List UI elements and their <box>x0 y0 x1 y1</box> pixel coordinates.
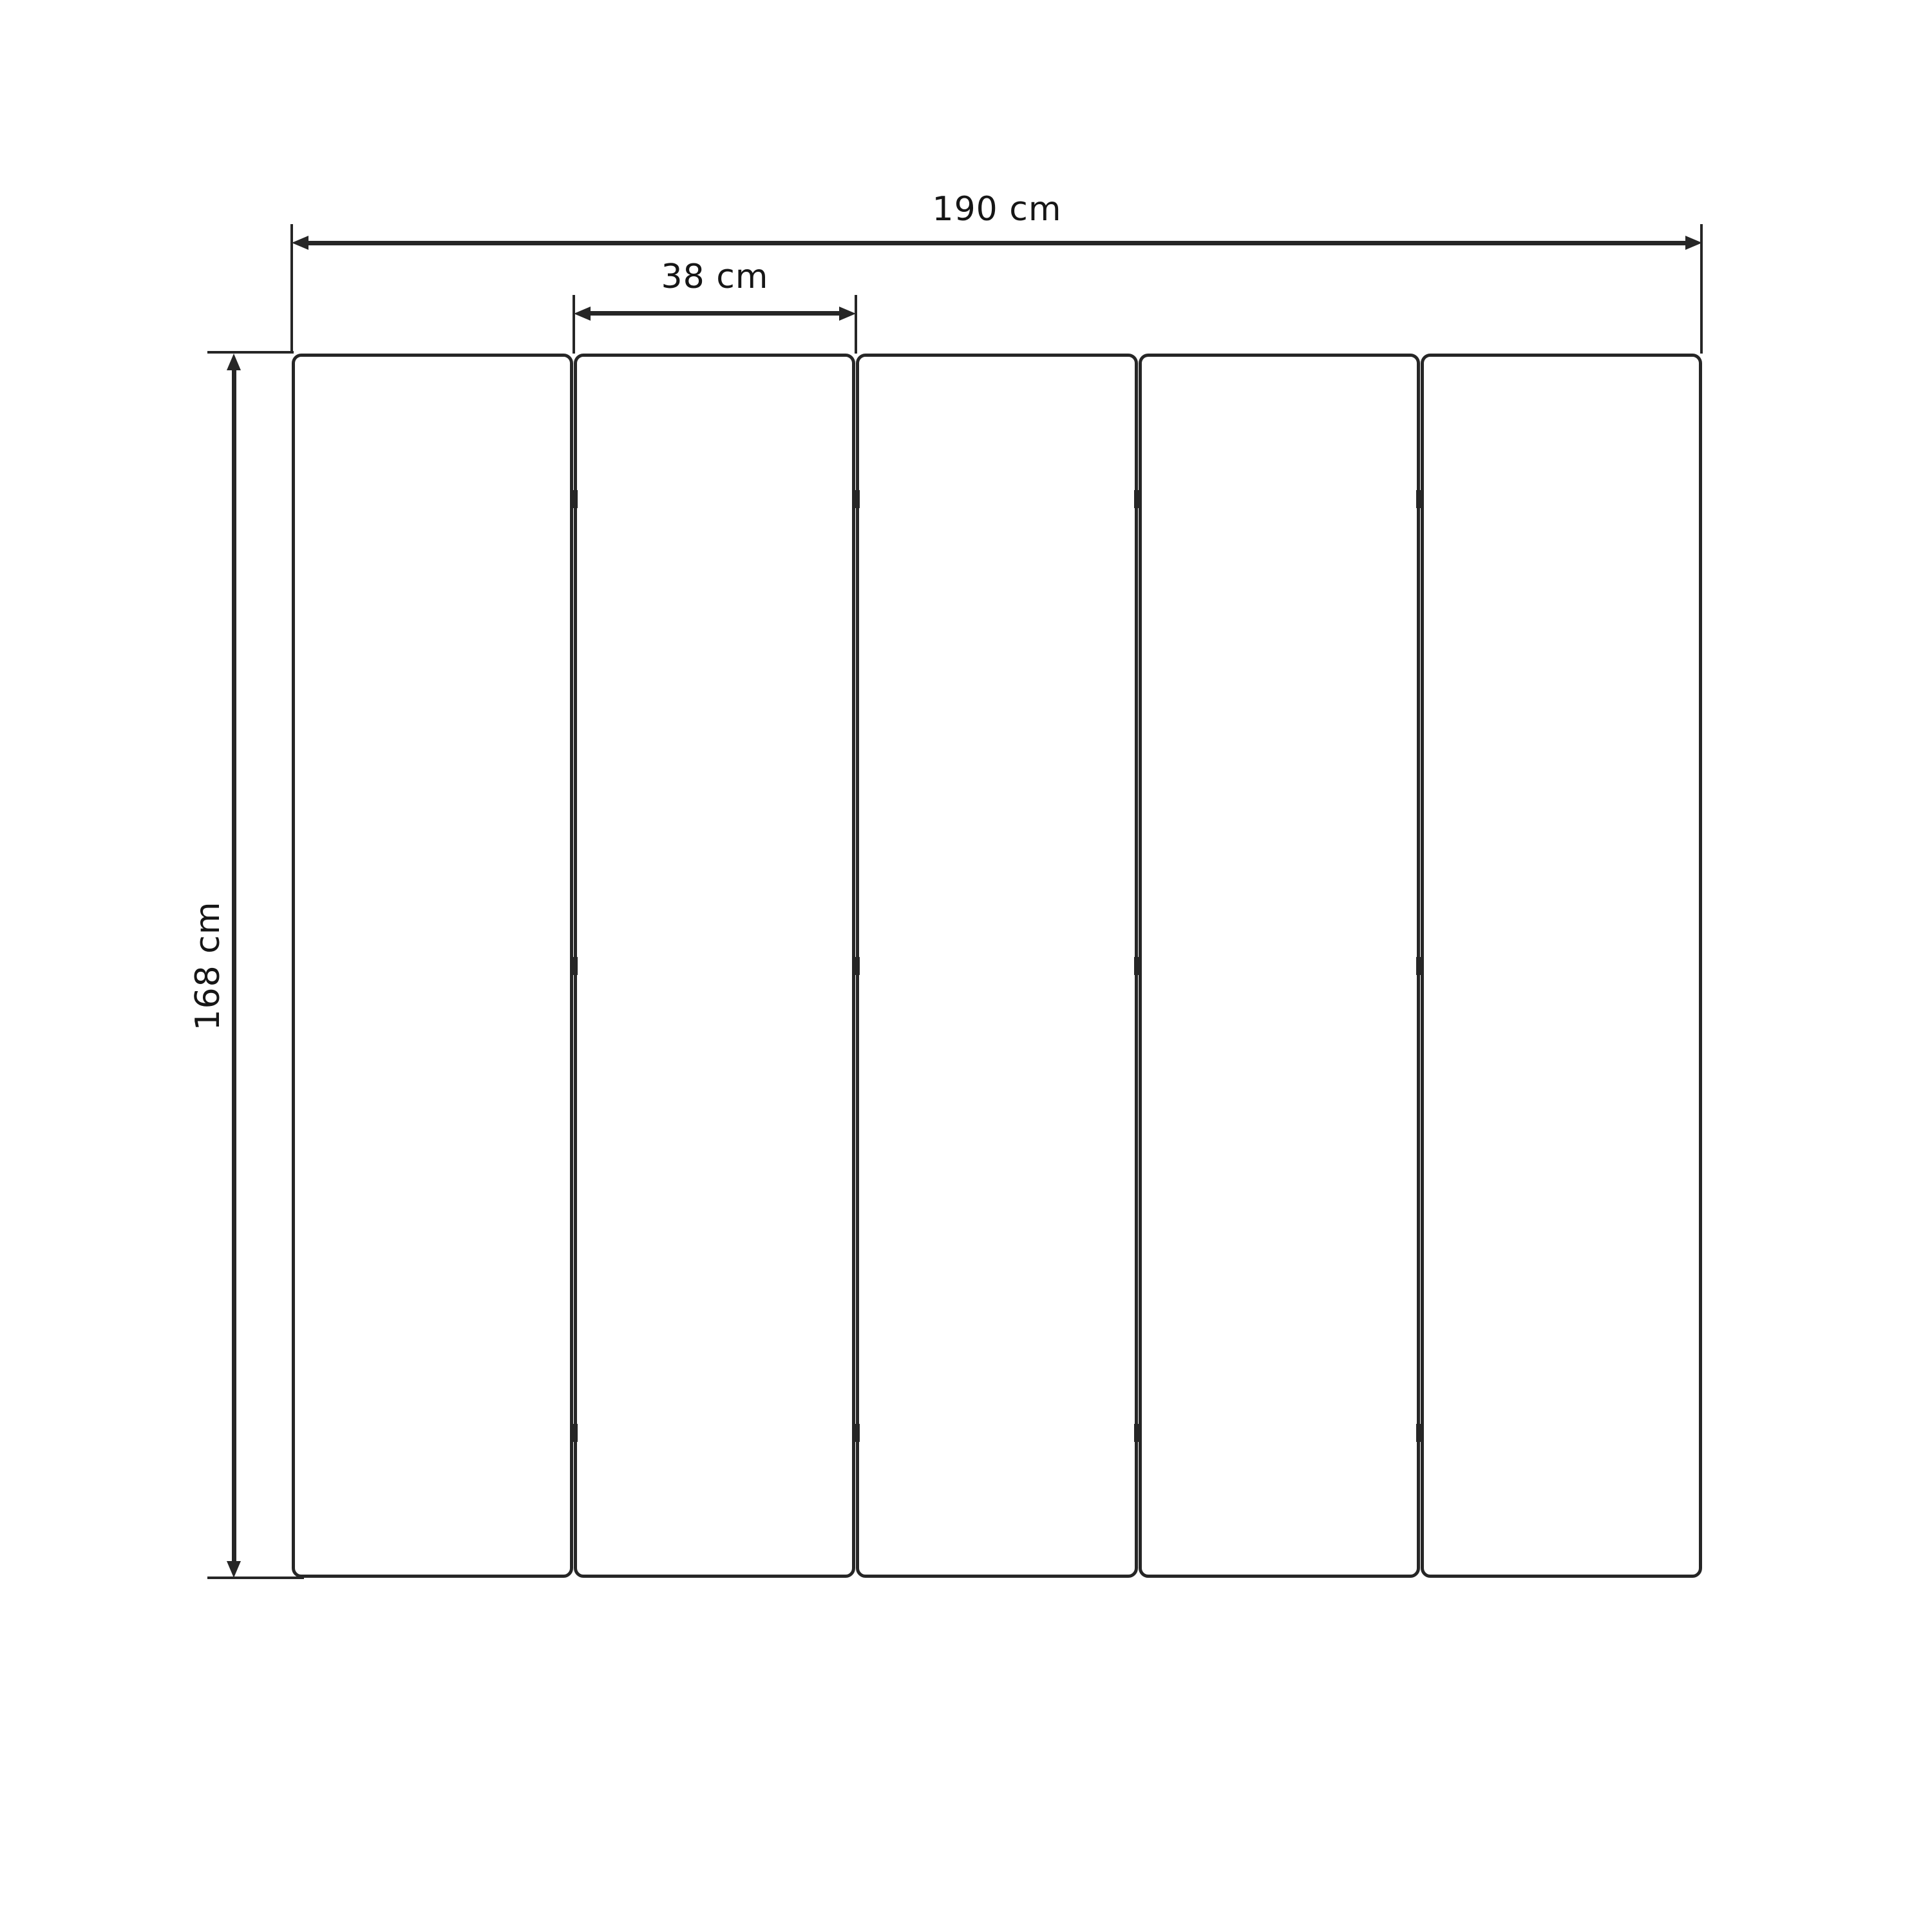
dimension-line-panel-width <box>591 311 839 316</box>
extension-line-top <box>207 351 294 354</box>
extension-line-left <box>573 295 575 354</box>
dimension-line-height <box>232 369 236 1562</box>
panel-4 <box>1139 354 1420 1578</box>
hinge-mark <box>570 490 578 508</box>
extension-line-bottom <box>207 1577 304 1579</box>
hinge-mark <box>570 957 578 975</box>
hinge-mark <box>1416 1424 1424 1442</box>
arrowhead-down-icon <box>227 1561 241 1578</box>
panel-3 <box>856 354 1137 1578</box>
arrowhead-right-icon <box>839 307 856 321</box>
dimension-label-height: 168 cm <box>188 869 228 1063</box>
hinge-mark <box>852 957 860 975</box>
hinge-mark <box>1416 490 1424 508</box>
panel-2 <box>574 354 855 1578</box>
panel-5 <box>1421 354 1702 1578</box>
hinge-mark <box>852 490 860 508</box>
panel-1 <box>292 354 573 1578</box>
diagram-canvas: 190 cm 38 cm 168 cm <box>0 0 1932 1932</box>
hinge-mark <box>852 1424 860 1442</box>
hinge-mark <box>1134 957 1142 975</box>
extension-line-right <box>855 295 857 354</box>
panel-row <box>292 354 1702 1578</box>
arrowhead-left-icon <box>574 307 591 321</box>
hinge-mark <box>570 1424 578 1442</box>
dimension-line-total-width <box>308 241 1685 245</box>
hinge-mark <box>1134 490 1142 508</box>
arrowhead-left-icon <box>292 236 308 250</box>
dimension-label-total-width: 190 cm <box>868 189 1126 229</box>
dimension-label-panel-width: 38 cm <box>618 257 811 297</box>
hinge-mark <box>1134 1424 1142 1442</box>
hinge-mark <box>1416 957 1424 975</box>
arrowhead-up-icon <box>227 354 241 370</box>
arrowhead-right-icon <box>1685 236 1702 250</box>
